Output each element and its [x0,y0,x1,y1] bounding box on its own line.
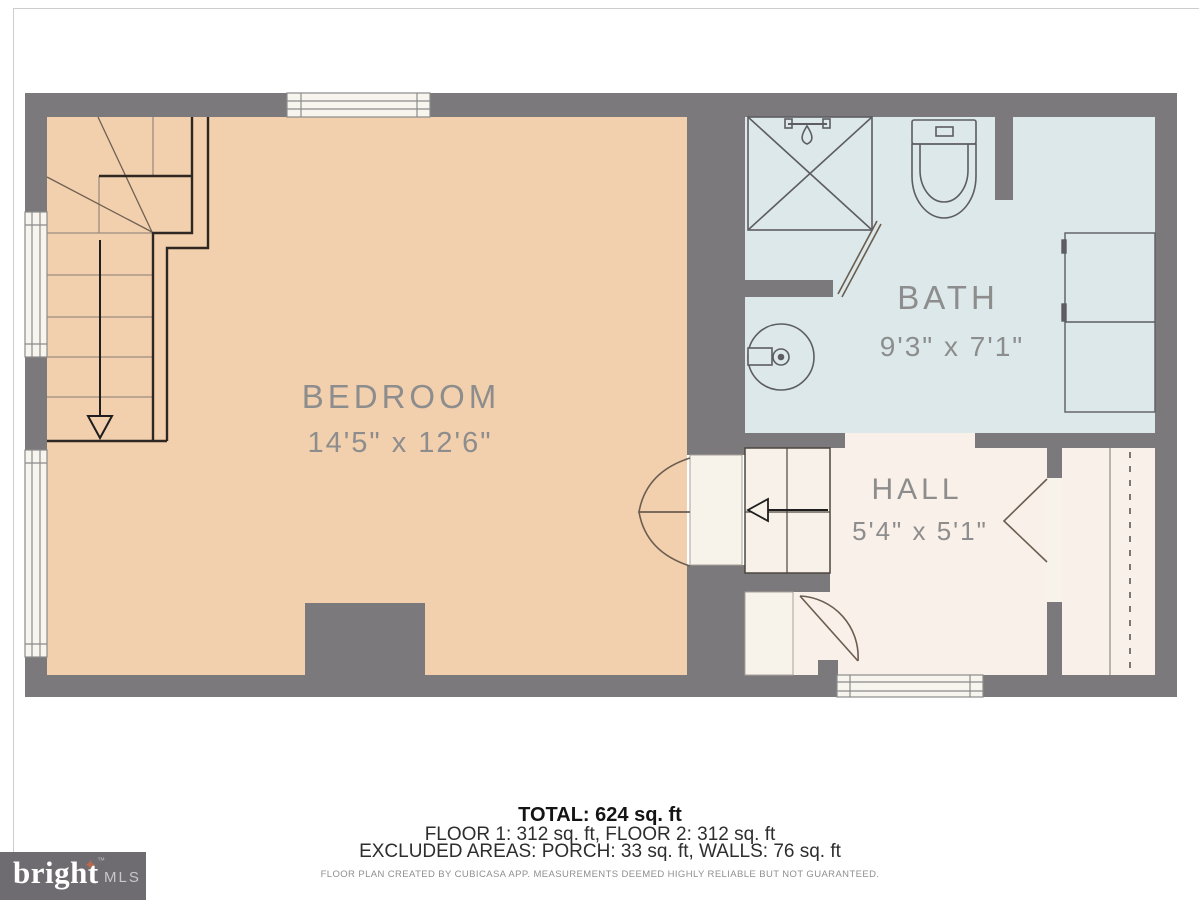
wall-stub-hall-stairs [745,573,830,592]
wall-bedroom-bath-divider [687,93,745,455]
disclaimer-text: FLOOR PLAN CREATED BY CUBICASA APP. MEAS… [0,869,1200,880]
excluded-areas-text: EXCLUDED AREAS: PORCH: 33 sq. ft, WALLS:… [0,841,1200,863]
wall-right [1155,93,1177,697]
room-fills [47,117,1155,675]
bright-mls-logo: bright ✦ ™ MLS [0,852,146,900]
bedroom-doorway-panel [690,455,742,565]
hall-door-panel [745,592,793,675]
bath-hall-opening [845,433,975,448]
logo-suffix-text: MLS [104,869,141,886]
wall-closet-jamb-bottom [1047,602,1062,675]
window-left-upper [25,212,47,357]
bedroom-dimensions: 14'5" x 12'6" [307,427,492,459]
floor-plan-page: BEDROOM 14'5" x 12'6" BATH 9'3" x 7'1" H… [0,0,1200,900]
window-top [287,93,430,117]
hall-label: HALL [871,473,962,506]
wall-bath-bottom-right [975,433,1155,448]
wall-stub-bath [995,117,1013,200]
closet-opening-panel [1047,478,1062,602]
wall-closet-jamb-top [1047,448,1062,478]
logo-star-icon: ✦ [84,856,97,874]
wall-stub-hall-window [818,660,838,675]
logo-trademark: ™ [97,856,105,865]
window-bottom [837,675,983,697]
wall-bedroom-notch [305,603,425,675]
bath-dimensions: 9'3" x 7'1" [880,331,1024,362]
bath-floor [745,117,1155,433]
wall-bottom [25,675,1177,697]
wall-stub-sink [745,280,833,297]
bath-label: BATH [897,279,999,316]
bedroom-label: BEDROOM [302,378,501,415]
hall-dimensions: 5'4" x 5'1" [852,516,988,546]
wall-top [25,93,1177,117]
stairs-lower [745,448,830,573]
floor-plan: BEDROOM 14'5" x 12'6" BATH 9'3" x 7'1" H… [0,0,1200,900]
window-left-lower [25,450,47,657]
wall-below-bedroom-door [687,565,745,675]
wall-bath-bottom-left [745,433,845,448]
